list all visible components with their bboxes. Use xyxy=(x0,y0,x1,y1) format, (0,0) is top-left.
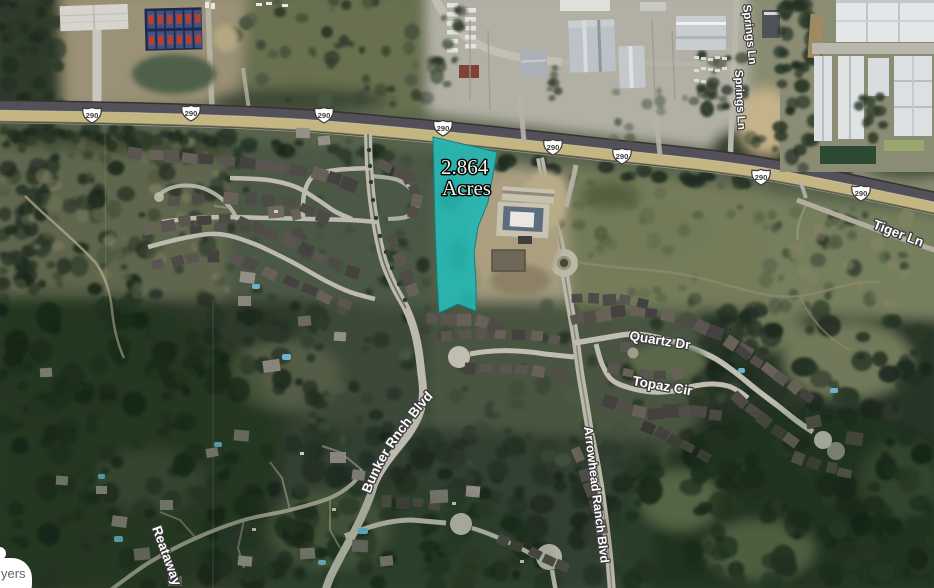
svg-text:290: 290 xyxy=(318,111,331,120)
svg-text:290: 290 xyxy=(437,124,450,133)
svg-text:290: 290 xyxy=(855,189,868,198)
svg-text:290: 290 xyxy=(86,111,99,120)
svg-text:Acres: Acres xyxy=(442,176,491,200)
svg-text:290: 290 xyxy=(616,152,629,161)
svg-text:290: 290 xyxy=(547,143,560,152)
svg-text:yers: yers xyxy=(1,566,26,581)
svg-text:290: 290 xyxy=(755,173,768,182)
svg-text:290: 290 xyxy=(185,109,198,118)
